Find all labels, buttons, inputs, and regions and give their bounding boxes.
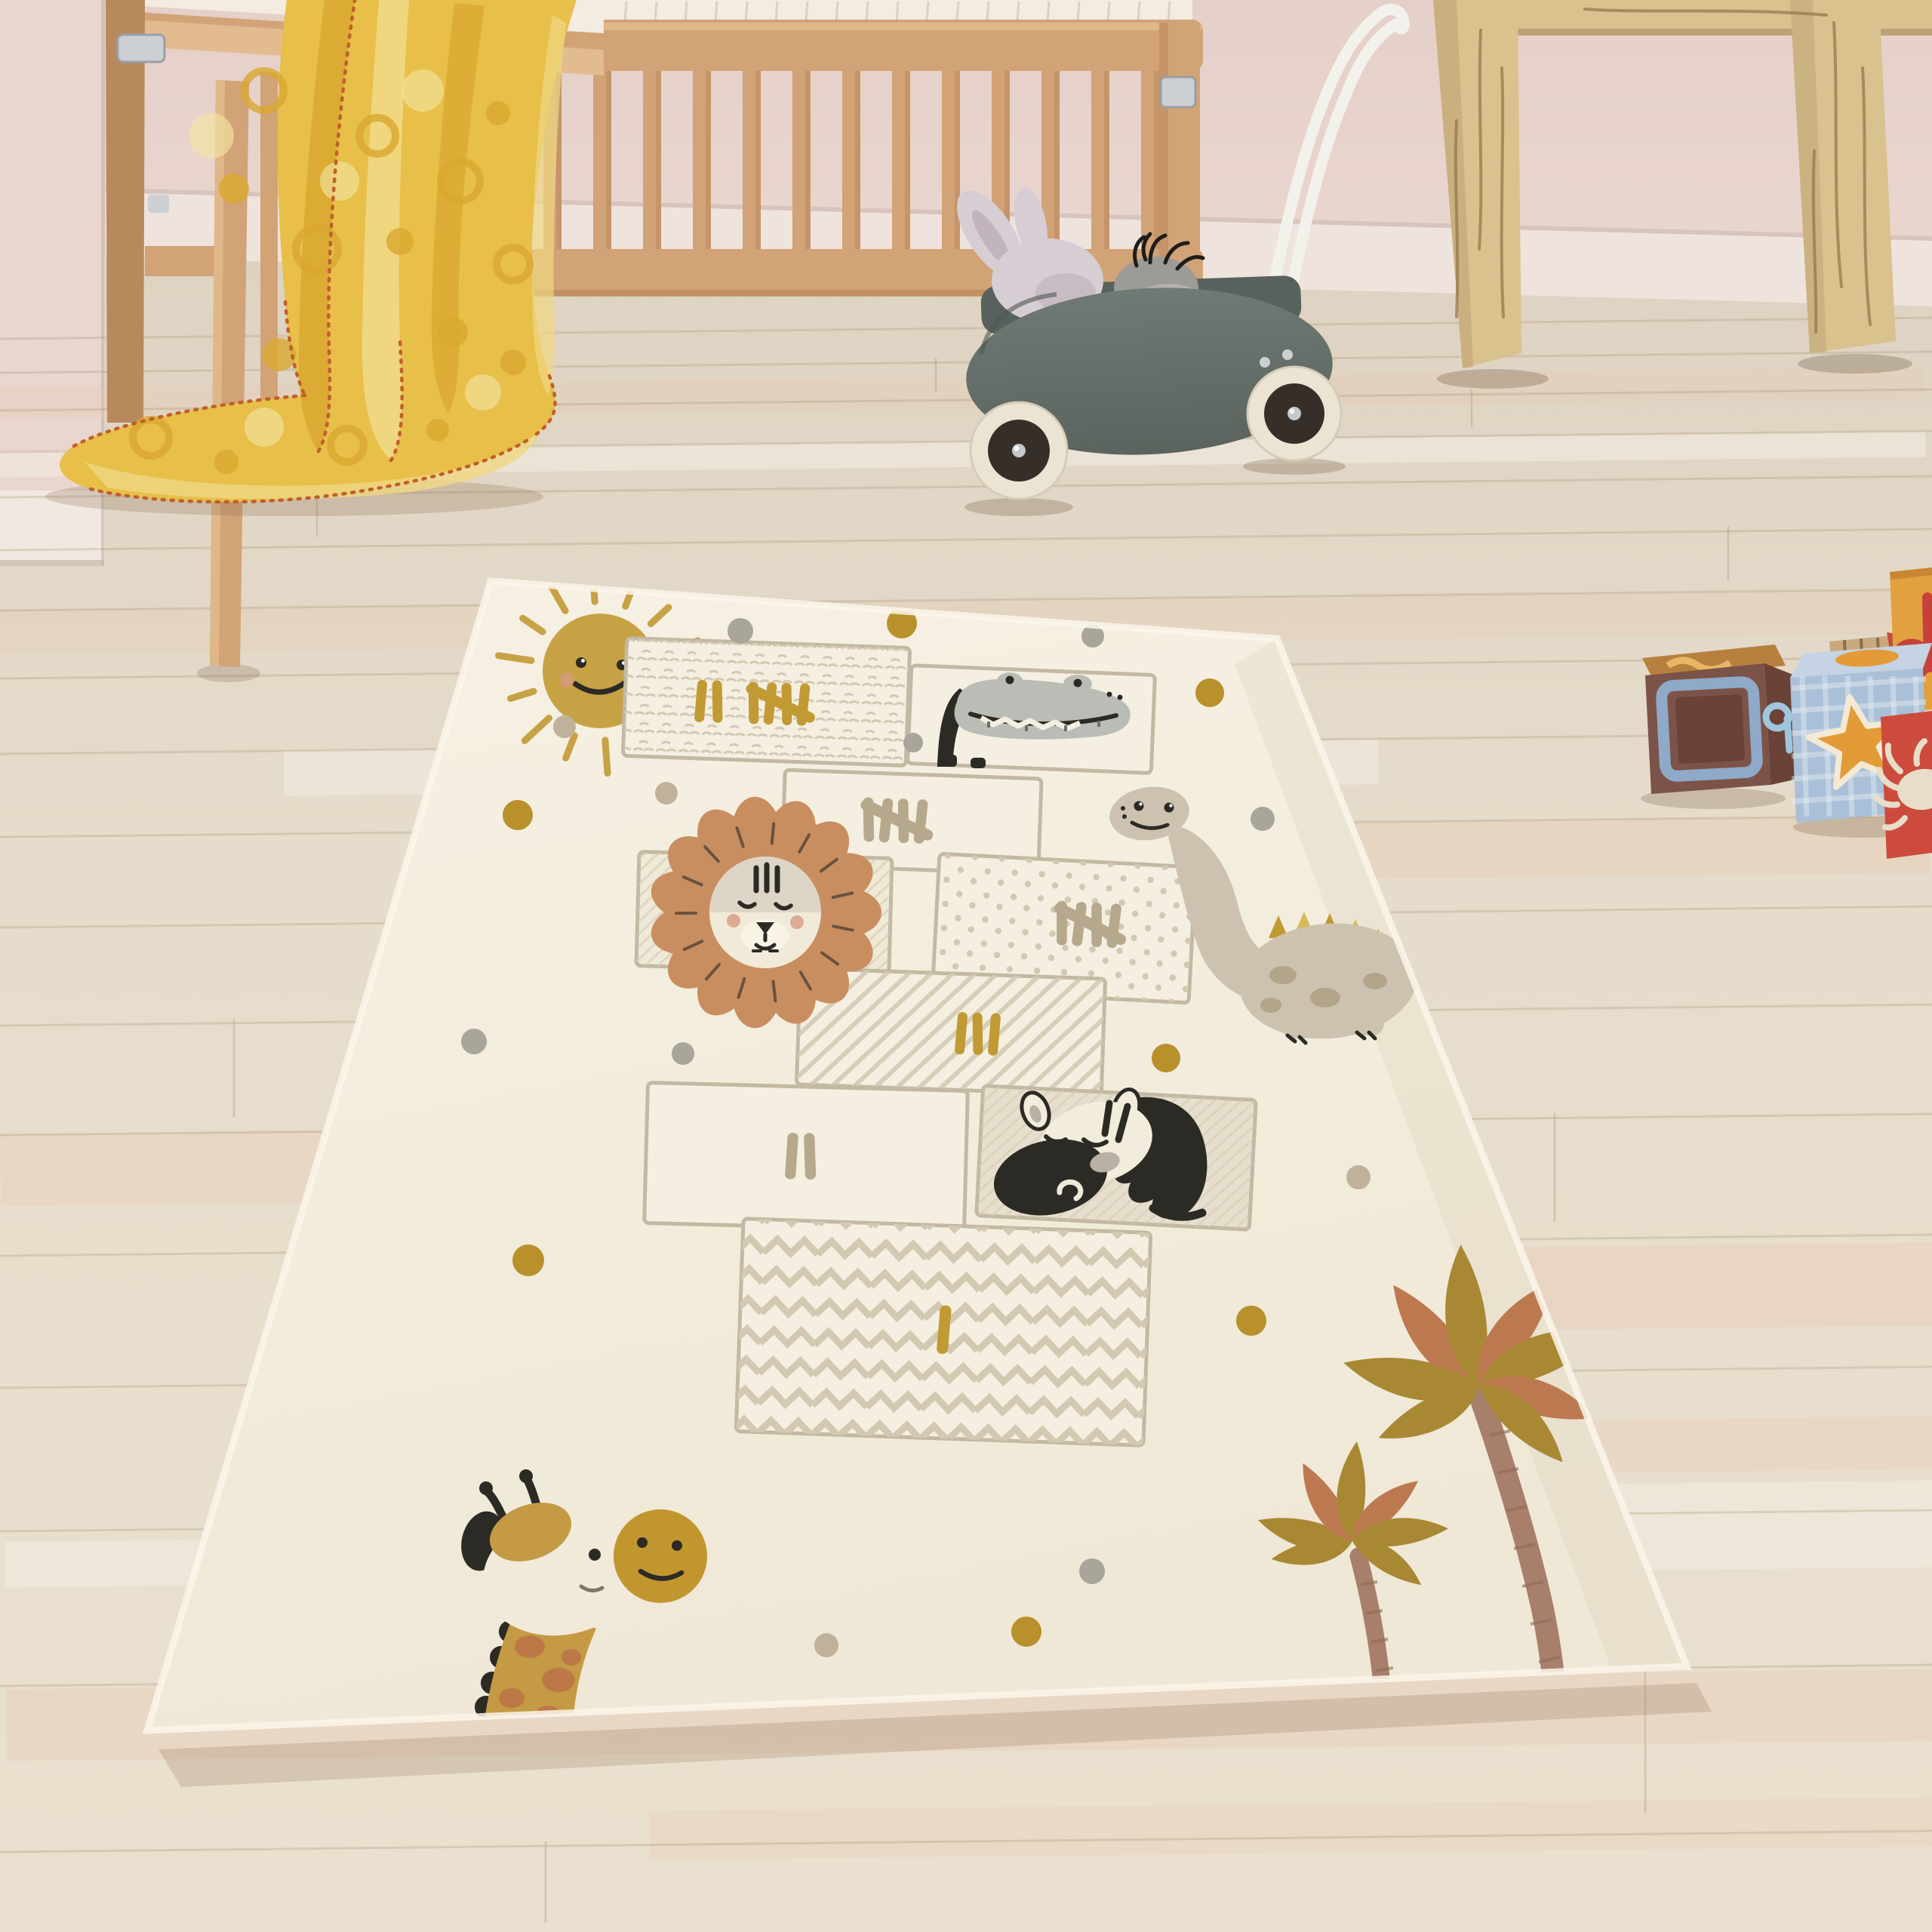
stool-foot-shadow <box>1798 354 1912 374</box>
stool-foot-shadow <box>1437 369 1549 389</box>
walker-front-wheel <box>1247 367 1341 460</box>
end-mid-rail <box>145 246 219 276</box>
nursery-room-photo <box>0 0 1932 1932</box>
end-leg-shadow <box>197 664 260 682</box>
dropside-bracket-small <box>148 195 169 213</box>
wheel-shadow <box>964 498 1073 516</box>
dropside-bracket-left <box>118 35 165 62</box>
walker-rear-wheel <box>971 402 1067 499</box>
tally-3 <box>955 1011 1001 1056</box>
dropside-bracket-right <box>1161 77 1195 107</box>
dropside-post <box>106 0 145 423</box>
walker-screw <box>1260 357 1270 368</box>
walker-screw <box>1282 349 1293 360</box>
